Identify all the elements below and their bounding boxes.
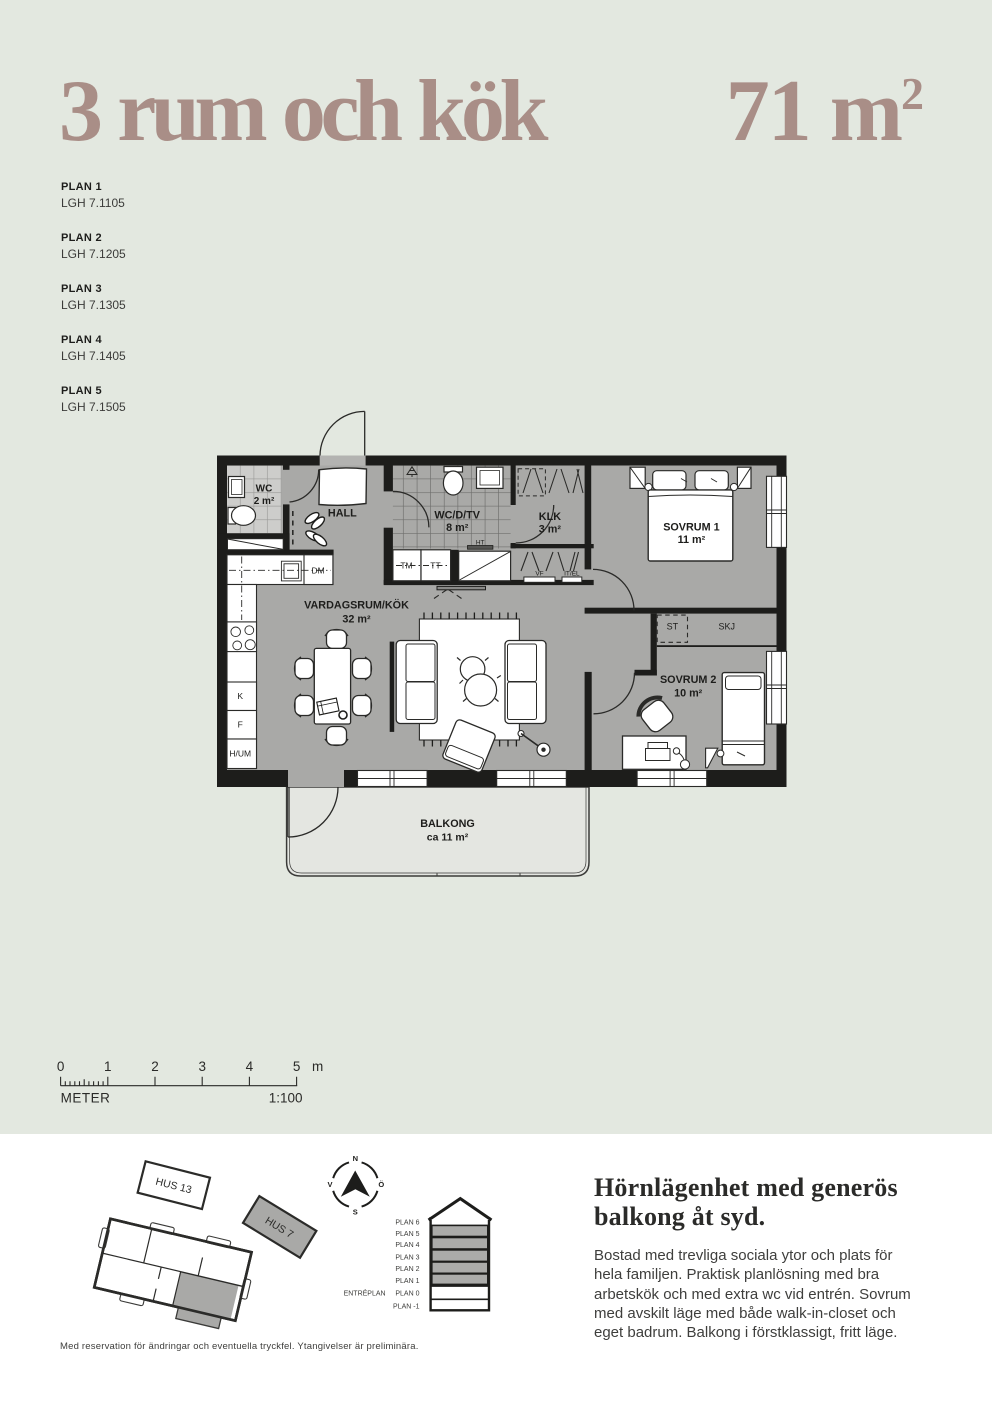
svg-text:SOVRUM 2: SOVRUM 2	[660, 674, 716, 686]
svg-text:3: 3	[198, 1059, 206, 1074]
svg-text:H/UM: H/UM	[229, 749, 251, 759]
svg-text:HT: HT	[476, 540, 485, 547]
svg-text:S: S	[353, 1208, 358, 1217]
svg-text:PLAN 5: PLAN 5	[395, 1231, 419, 1238]
svg-text:4: 4	[246, 1059, 254, 1074]
svg-text:5: 5	[293, 1059, 301, 1074]
svg-text:WC/D/TV: WC/D/TV	[434, 510, 480, 522]
svg-text:2: 2	[151, 1059, 159, 1074]
svg-text:DM: DM	[311, 566, 324, 576]
svg-text:K: K	[237, 691, 243, 701]
svg-text:F: F	[238, 720, 243, 730]
svg-text:PLAN 0: PLAN 0	[395, 1291, 419, 1298]
svg-text:IT/EL: IT/EL	[564, 571, 580, 578]
svg-text:Ö: Ö	[378, 1180, 384, 1189]
svg-text:PLAN 6: PLAN 6	[395, 1220, 419, 1227]
svg-text:SOVRUM 1: SOVRUM 1	[663, 522, 719, 534]
svg-text:PLAN -1: PLAN -1	[393, 1304, 420, 1311]
svg-text:PLAN 4: PLAN 4	[395, 1242, 419, 1249]
svg-text:1: 1	[104, 1059, 112, 1074]
svg-text:N: N	[353, 1154, 358, 1163]
svg-text:PLAN 2: PLAN 2	[395, 1266, 419, 1273]
svg-text:3 m²: 3 m²	[539, 524, 562, 536]
svg-text:ENTRÉPLAN: ENTRÉPLAN	[344, 1289, 386, 1298]
svg-text:8 m²: 8 m²	[446, 522, 469, 534]
svg-text:11 m²: 11 m²	[678, 534, 706, 546]
svg-text:1:100: 1:100	[269, 1091, 303, 1106]
svg-text:VARDAGSRUM/KÖK: VARDAGSRUM/KÖK	[304, 599, 409, 612]
svg-text:PLAN 1: PLAN 1	[395, 1278, 419, 1285]
svg-text:V: V	[327, 1180, 332, 1189]
svg-text:10 m²: 10 m²	[674, 688, 703, 700]
svg-text:0: 0	[57, 1059, 65, 1074]
svg-text:WC: WC	[256, 484, 273, 495]
svg-text:SKJ: SKJ	[719, 622, 736, 632]
svg-text:ST: ST	[667, 622, 679, 632]
svg-text:HALL: HALL	[328, 508, 357, 520]
svg-text:BALKONG: BALKONG	[420, 818, 475, 830]
svg-text:32 m²: 32 m²	[342, 614, 371, 626]
svg-text:VF: VF	[535, 571, 543, 578]
svg-text:ca 11 m²: ca 11 m²	[427, 832, 469, 844]
svg-text:KLK: KLK	[539, 511, 561, 523]
svg-text:METER: METER	[61, 1091, 111, 1106]
svg-text:PLAN 3: PLAN 3	[395, 1255, 419, 1262]
svg-text:2 m²: 2 m²	[254, 496, 275, 507]
svg-text:m: m	[312, 1059, 323, 1074]
